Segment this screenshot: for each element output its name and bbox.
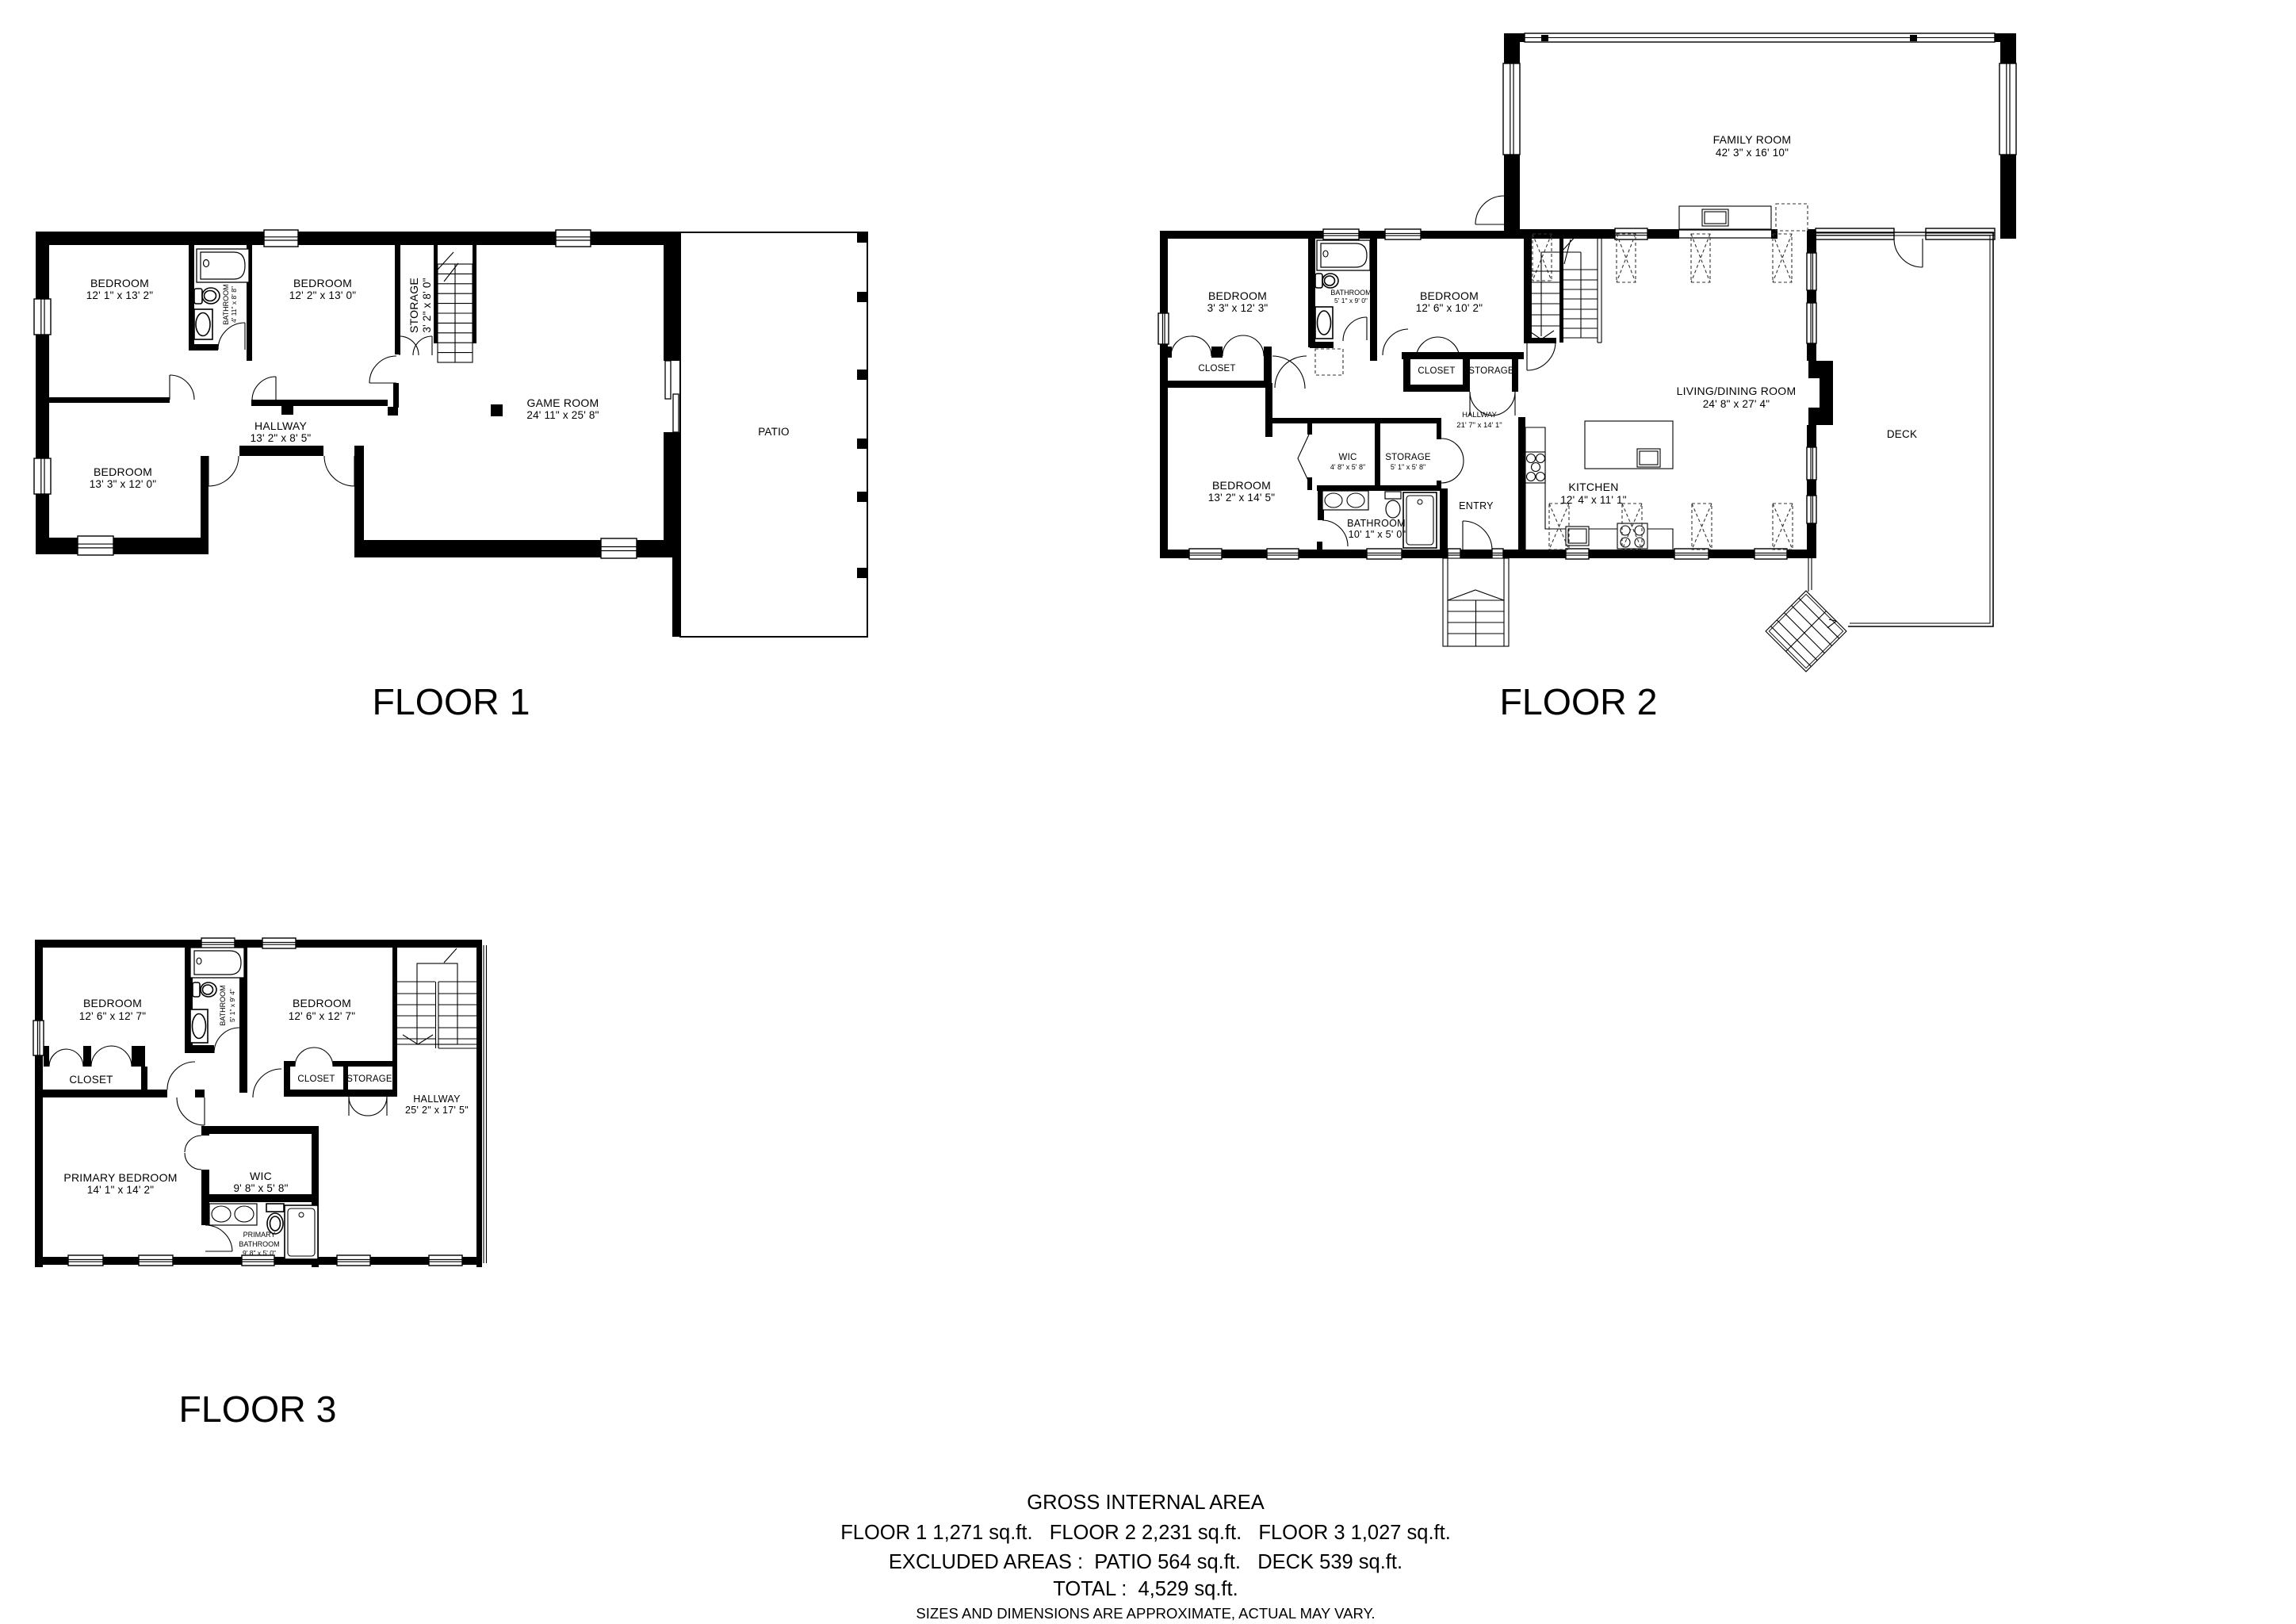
svg-text:4' 8" x 5' 8": 4' 8" x 5' 8" [1330, 463, 1365, 471]
svg-text:BEDROOM: BEDROOM [1208, 289, 1267, 302]
svg-text:BEDROOM: BEDROOM [1212, 479, 1271, 492]
svg-text:BATHROOM: BATHROOM [222, 284, 230, 324]
svg-text:STORAGE: STORAGE [408, 278, 420, 333]
svg-text:ENTRY: ENTRY [1459, 500, 1494, 511]
svg-text:24' 8" x 27' 4": 24' 8" x 27' 4" [1703, 398, 1770, 410]
svg-text:13' 2" x 8' 5": 13' 2" x 8' 5" [251, 432, 312, 444]
svg-text:5' 1" x 9' 0": 5' 1" x 9' 0" [1334, 297, 1368, 304]
svg-text:CLOSET: CLOSET [1198, 364, 1235, 373]
svg-text:12' 4" x 11' 1": 12' 4" x 11' 1" [1560, 494, 1627, 506]
svg-text:HALLWAY: HALLWAY [413, 1094, 461, 1105]
svg-text:HALLWAY: HALLWAY [254, 419, 307, 432]
svg-text:9' 8" x 5' 0": 9' 8" x 5' 0" [243, 1249, 276, 1257]
svg-text:FLOOR 3: FLOOR 3 [179, 1388, 337, 1430]
svg-text:GROSS INTERNAL AREA: GROSS INTERNAL AREA [1027, 1492, 1264, 1514]
svg-text:TOTAL : 4,529 sq.ft.: TOTAL : 4,529 sq.ft. [1053, 1578, 1238, 1600]
svg-text:12' 6" x 10' 2": 12' 6" x 10' 2" [1416, 302, 1483, 314]
svg-text:13' 3" x 12' 0": 13' 3" x 12' 0" [90, 478, 157, 490]
svg-text:4' 11" x 8' 8": 4' 11" x 8' 8" [230, 286, 238, 323]
svg-text:12' 6" x 12' 7": 12' 6" x 12' 7" [79, 1010, 147, 1022]
svg-text:CLOSET: CLOSET [297, 1074, 335, 1084]
svg-text:BATHROOM: BATHROOM [219, 985, 227, 1025]
svg-text:EXCLUDED AREAS : PATIO 564 sq: EXCLUDED AREAS : PATIO 564 sq.ft. DECK 5… [889, 1551, 1402, 1573]
svg-text:HALLWAY: HALLWAY [1462, 411, 1497, 419]
svg-text:21' 7" x 14' 1": 21' 7" x 14' 1" [1456, 421, 1502, 430]
svg-text:FLOOR 2: FLOOR 2 [1500, 681, 1658, 722]
svg-text:5' 1" x 9' 4": 5' 1" x 9' 4" [228, 989, 236, 1022]
svg-text:FLOOR 1: FLOOR 1 [373, 681, 530, 722]
svg-text:WIC: WIC [250, 1170, 272, 1182]
svg-text:BEDROOM: BEDROOM [293, 277, 352, 289]
svg-text:FLOOR 1 1,271 sq.ft. FLOOR 2: FLOOR 1 1,271 sq.ft. FLOOR 2 2,231 sq.ft… [840, 1522, 1451, 1544]
svg-text:5' 1" x 5' 8": 5' 1" x 5' 8" [1391, 463, 1425, 471]
svg-text:STORAGE: STORAGE [1468, 366, 1514, 376]
svg-text:PRIMARY: PRIMARY [243, 1231, 276, 1239]
svg-text:SIZES AND DIMENSIONS ARE APPRO: SIZES AND DIMENSIONS ARE APPROXIMATE, AC… [916, 1605, 1375, 1622]
svg-text:BATHROOM: BATHROOM [1330, 289, 1371, 297]
svg-text:WIC: WIC [1339, 453, 1357, 462]
svg-text:STORAGE: STORAGE [346, 1074, 392, 1084]
svg-text:KITCHEN: KITCHEN [1568, 481, 1618, 493]
svg-text:BATHROOM: BATHROOM [1347, 518, 1406, 529]
svg-text:PATIO: PATIO [758, 426, 790, 438]
svg-text:24' 11" x 25' 8": 24' 11" x 25' 8" [526, 409, 599, 421]
svg-text:BEDROOM: BEDROOM [83, 997, 142, 1009]
svg-text:STORAGE: STORAGE [1385, 453, 1431, 462]
svg-text:12' 6" x 12' 7": 12' 6" x 12' 7" [289, 1010, 356, 1022]
svg-text:3' 2" x 8' 0": 3' 2" x 8' 0" [421, 278, 433, 332]
svg-text:PRIMARY BEDROOM: PRIMARY BEDROOM [63, 1171, 177, 1184]
svg-text:FAMILY ROOM: FAMILY ROOM [1713, 133, 1792, 146]
svg-text:BEDROOM: BEDROOM [1420, 289, 1479, 302]
svg-text:CLOSET: CLOSET [69, 1074, 113, 1086]
svg-text:12' 1" x 13' 2": 12' 1" x 13' 2" [86, 289, 154, 301]
svg-text:13' 2" x 14' 5": 13' 2" x 14' 5" [1208, 492, 1276, 504]
svg-text:9' 8" x 5' 8": 9' 8" x 5' 8" [233, 1182, 288, 1194]
svg-text:BEDROOM: BEDROOM [94, 465, 152, 478]
svg-text:CLOSET: CLOSET [1418, 366, 1455, 376]
svg-text:12' 2" x 13' 0": 12' 2" x 13' 0" [289, 289, 357, 301]
svg-text:BEDROOM: BEDROOM [293, 997, 351, 1009]
svg-text:BATHROOM: BATHROOM [239, 1240, 279, 1248]
svg-text:25' 2" x 17' 5": 25' 2" x 17' 5" [405, 1105, 469, 1116]
svg-text:10' 1" x 5' 0": 10' 1" x 5' 0" [1349, 529, 1406, 540]
svg-text:42' 3" x 16' 10": 42' 3" x 16' 10" [1716, 147, 1789, 159]
svg-text:LIVING/DINING ROOM: LIVING/DINING ROOM [1677, 385, 1797, 397]
svg-text:14' 1" x 14' 2": 14' 1" x 14' 2" [87, 1184, 155, 1196]
svg-text:BEDROOM: BEDROOM [90, 277, 149, 289]
svg-text:GAME ROOM: GAME ROOM [527, 396, 599, 409]
svg-text:DECK: DECK [1887, 428, 1917, 440]
svg-text:3' 3" x 12' 3": 3' 3" x 12' 3" [1207, 302, 1269, 314]
